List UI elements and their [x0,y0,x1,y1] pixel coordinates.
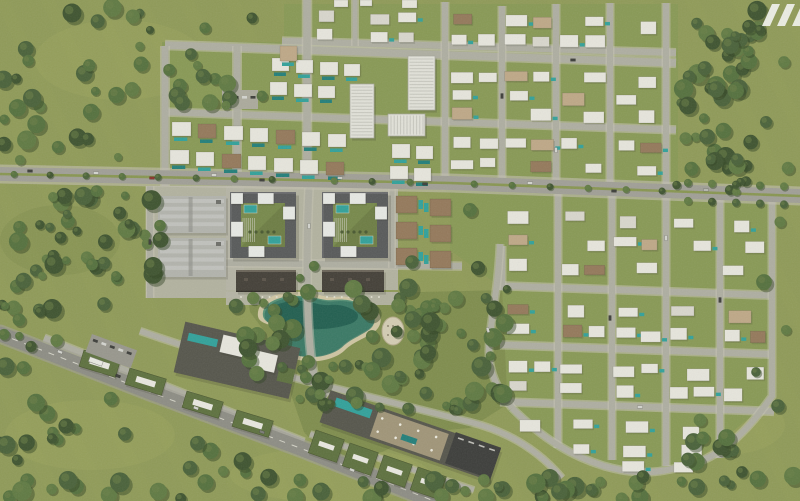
render-canvas [0,0,800,501]
aerial-masterplan-render [0,0,800,501]
photo-grade [0,0,800,501]
